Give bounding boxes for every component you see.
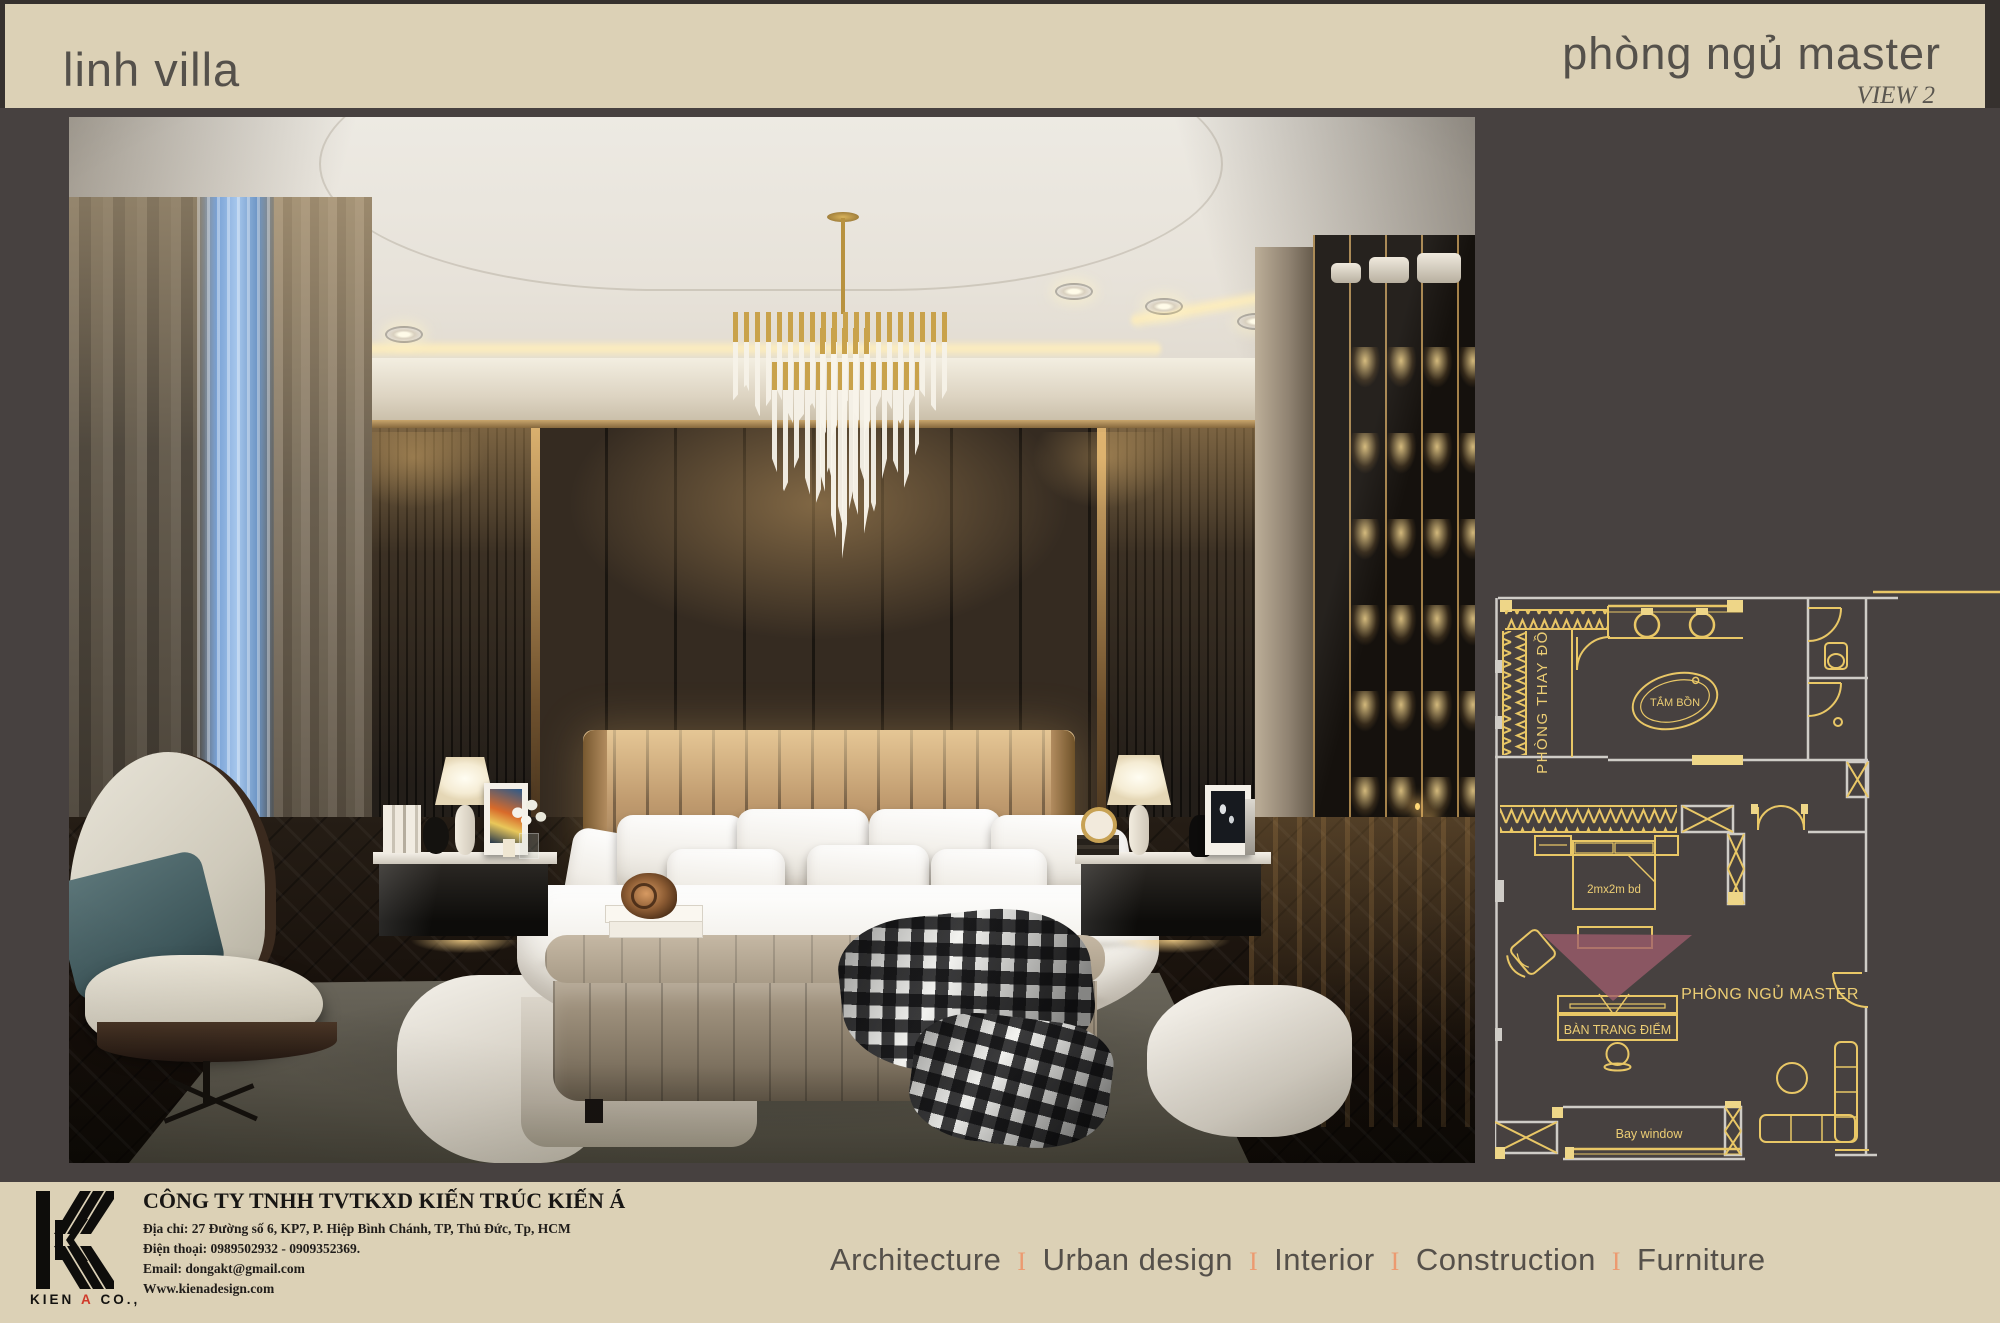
service-item: Construction	[1416, 1242, 1596, 1277]
services-separator: I	[1612, 1247, 1621, 1276]
logo-text-co: CO.,	[101, 1292, 141, 1307]
nightstand-underglow	[1099, 940, 1248, 966]
logo-text-a: A	[81, 1292, 94, 1307]
project-title: linh villa	[63, 42, 240, 97]
bench-leg	[585, 1099, 603, 1123]
view-label: VIEW 2	[1857, 82, 1935, 110]
company-website: Www.kienadesign.com	[143, 1281, 625, 1297]
plan-label-bay-window: Bay window	[1616, 1127, 1684, 1141]
books	[383, 805, 421, 853]
service-item: Urban design	[1043, 1242, 1233, 1277]
chandelier-stem	[841, 218, 845, 314]
downlight	[1055, 283, 1093, 300]
folded-clothes	[1417, 253, 1461, 283]
wall-vertical-trim	[531, 428, 540, 848]
floor-plan: PHÒNG THAY ĐỒ TẮM BỒN 2mx2m bd BÀN TRANG…	[1495, 588, 2000, 1163]
flower-bouquet	[505, 795, 551, 837]
services-separator: I	[1017, 1247, 1026, 1276]
services-separator: I	[1249, 1247, 1258, 1276]
logo-text-kien: KIEN	[30, 1292, 74, 1307]
footer-band: KIEN A CO., CÔNG TY TNHH TVTKXD KIẾN TRÚ…	[0, 1182, 2000, 1323]
candle-flame	[1415, 803, 1420, 810]
service-item: Interior	[1274, 1242, 1374, 1277]
folded-clothes	[1331, 263, 1361, 283]
plan-label-dressing-room: PHÒNG THAY ĐỒ	[1533, 630, 1551, 774]
kien-a-logo	[36, 1191, 114, 1289]
table-lamp-base	[1129, 805, 1149, 855]
downlight	[1145, 298, 1183, 315]
downlight	[385, 326, 423, 343]
services-list: ArchitectureIUrban designIInteriorIConst…	[830, 1242, 1766, 1278]
company-email: Email: dongakt@gmail.com	[143, 1261, 625, 1277]
nightstand-right	[1075, 852, 1271, 964]
interior-render	[69, 117, 1475, 1163]
logo-caption: KIEN A CO.,	[30, 1292, 140, 1307]
folded-clothes	[1369, 257, 1409, 283]
company-phone: Điện thoại: 0989502932 - 0909352369.	[143, 1241, 625, 1257]
alarm-clock	[1081, 807, 1117, 843]
sculpture	[423, 817, 449, 854]
nightstand-drawer	[379, 864, 548, 936]
services-separator: I	[1391, 1247, 1400, 1276]
plan-view-cone	[1542, 934, 1692, 1001]
service-item: Furniture	[1637, 1242, 1766, 1277]
header-band: linh villa phòng ngủ master VIEW 2	[5, 4, 1985, 108]
plan-label-bathtub: TẮM BỒN	[1650, 696, 1700, 709]
chandelier	[733, 212, 953, 512]
plan-label-master-bedroom: PHÒNG NGỦ MASTER	[1681, 984, 1859, 1003]
room-title: phòng ngủ master	[1562, 28, 1941, 80]
wall-light-wash	[1009, 432, 1199, 602]
company-address: Địa chỉ: 27 Đường số 6, KP7, P. Hiệp Bìn…	[143, 1221, 625, 1237]
shell-sculpture	[621, 873, 677, 919]
plan-label-dressing-table: BÀN TRANG ĐIỂM	[1564, 1022, 1671, 1037]
frame-artwork	[1211, 791, 1245, 843]
nightstand-drawer	[1081, 864, 1261, 936]
nightstand-underglow	[395, 940, 535, 966]
candlestick	[1245, 799, 1255, 855]
nightstand-left	[373, 852, 557, 964]
plan-walls-gold	[1495, 592, 2000, 1155]
coffee-table-book	[609, 921, 703, 938]
candle	[503, 839, 515, 857]
duvet-drape-right	[1147, 985, 1352, 1137]
company-name: CÔNG TY TNHH TVTKXD KIẾN TRÚC KIẾN Á	[143, 1188, 625, 1214]
company-info: CÔNG TY TNHH TVTKXD KIẾN TRÚC KIẾN Á Địa…	[143, 1188, 625, 1301]
glass-vase	[519, 833, 539, 859]
armchair-leg	[203, 1061, 210, 1103]
service-item: Architecture	[830, 1242, 1001, 1277]
plan-label-bed: 2mx2m bd	[1587, 884, 1641, 896]
table-lamp-base	[455, 805, 475, 855]
